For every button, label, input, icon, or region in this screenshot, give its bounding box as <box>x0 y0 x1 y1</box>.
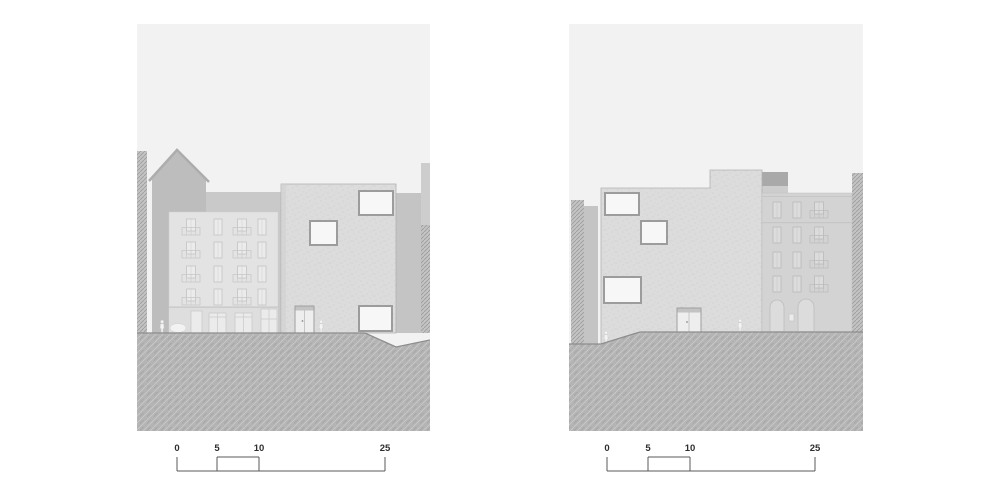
ground-section <box>137 333 430 431</box>
cornice-line <box>762 222 852 223</box>
elevation-drawing-right <box>569 24 863 431</box>
window-plain <box>793 276 801 292</box>
scale-label-0: 0 <box>174 443 179 454</box>
basement-window <box>789 314 794 321</box>
scale-label-5: 5 <box>214 443 220 454</box>
neighbour-building-right <box>396 193 421 333</box>
scale-label-10: 10 <box>685 443 696 454</box>
elevation-drawing-left <box>137 24 430 431</box>
facade-shadow-edge <box>281 184 286 333</box>
window-plain <box>773 202 781 218</box>
scale-label-0: 0 <box>604 443 609 454</box>
square-window-top-left <box>605 193 639 215</box>
scale-bar-line <box>177 457 385 471</box>
ground-hatch <box>137 333 430 431</box>
modern-building <box>281 184 396 333</box>
door-handle <box>686 321 688 323</box>
scale-bar-right-graphic: 0 5 10 25 <box>590 438 840 478</box>
window-plain <box>773 252 781 268</box>
window-plain <box>773 227 781 243</box>
arched-doorway <box>770 300 784 331</box>
door-handle <box>302 320 304 322</box>
street-furniture <box>170 324 186 333</box>
section-cut-wall <box>137 151 147 333</box>
section-cut-wall-right <box>852 173 863 332</box>
section-cut-wall-right <box>421 225 430 333</box>
window-plain <box>258 266 266 282</box>
window-plain <box>214 219 222 235</box>
arched-doorway <box>798 299 814 331</box>
elevation-panel-left <box>137 24 430 431</box>
entrance-door <box>295 306 314 333</box>
classical-building <box>762 193 852 332</box>
scale-label-25: 25 <box>810 443 821 454</box>
window-plain <box>793 202 801 218</box>
square-window-lower-left <box>604 277 641 303</box>
modern-building <box>601 170 762 345</box>
window-plain <box>214 242 222 258</box>
window-plain <box>793 227 801 243</box>
window-plain <box>214 289 222 305</box>
scale-bar-right: 0 5 10 25 <box>590 438 840 478</box>
ground-hatch <box>569 332 863 431</box>
scale-bar-line <box>607 457 815 471</box>
window-plain <box>793 252 801 268</box>
section-cut-wall <box>571 200 584 345</box>
stair-bulkhead <box>762 172 788 186</box>
classical-building <box>169 212 278 333</box>
square-window-bottom <box>359 306 392 331</box>
scale-label-5: 5 <box>645 443 651 454</box>
parapet-line <box>762 196 852 197</box>
square-window-top <box>359 191 393 215</box>
window-plain <box>258 289 266 305</box>
scale-label-25: 25 <box>380 443 391 454</box>
window-plain <box>214 266 222 282</box>
entrance-door <box>191 311 202 333</box>
window-plain <box>258 219 266 235</box>
entrance-door <box>677 308 701 332</box>
ground-section <box>569 332 863 431</box>
square-window-middle <box>641 221 667 244</box>
cornice-line <box>169 307 278 308</box>
architectural-sheet: 0 5 10 25 0 5 10 25 <box>0 0 1000 500</box>
window-plain <box>773 276 781 292</box>
square-window-middle <box>310 221 337 245</box>
elevation-panel-right <box>569 24 863 431</box>
window-plain <box>258 242 266 258</box>
attic-block <box>762 186 788 193</box>
neighbour-building-left <box>584 206 598 345</box>
scale-label-10: 10 <box>254 443 265 454</box>
scale-bar-left-graphic: 0 5 10 25 <box>160 438 410 478</box>
edge-building <box>421 163 430 225</box>
scale-bar-left: 0 5 10 25 <box>160 438 410 478</box>
